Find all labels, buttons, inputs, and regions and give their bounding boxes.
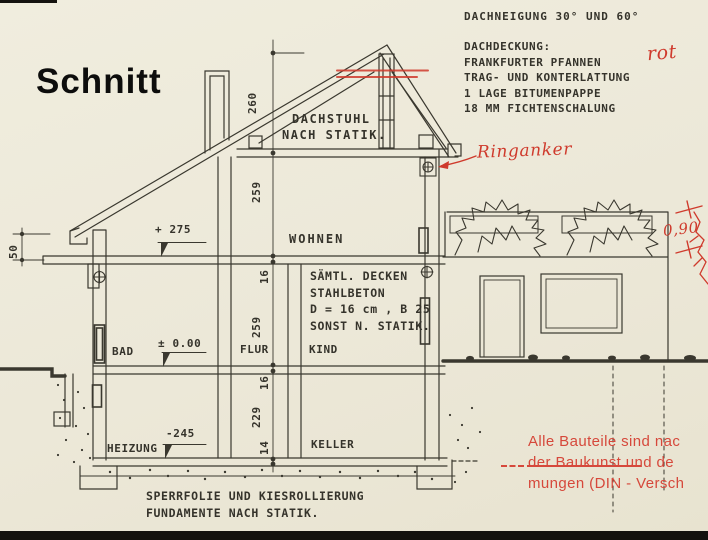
- red-stamp-line: der Baukunst und de: [528, 452, 684, 473]
- roof-covering-line: 18 MM FICHTENSCHALUNG: [464, 101, 630, 117]
- roof-covering-line: 1 LAGE BITUMENPAPPE: [464, 86, 630, 102]
- roof-covering-line: DACHDECKUNG:: [464, 39, 630, 55]
- scan-edge-top-left: [0, 0, 57, 3]
- room-label-wohnen: WOHNEN: [289, 233, 344, 245]
- dim-eave-height: 50: [8, 245, 19, 259]
- room-label-kind: KIND: [309, 344, 338, 355]
- stamp-strikethrough: [527, 465, 641, 467]
- room-label-heizung: HEIZUNG: [107, 443, 158, 454]
- ceiling-spec-note: SÄMTL. DECKEN STAHLBETON D = 16 cm , B 2…: [310, 268, 430, 334]
- dim-upper-slab: 16: [259, 270, 270, 284]
- roof-pitch-note: DACHNEIGUNG 30° UND 60°: [464, 11, 639, 22]
- ring-anchor-symbols: [94, 162, 434, 283]
- level-basement: -245: [166, 428, 195, 439]
- chimney: [205, 71, 229, 153]
- attic-note-line2: NACH STATIK.: [282, 129, 387, 141]
- blueprint-canvas: Schnitt DACHNEIGUNG 30° UND 60° DACHDECK…: [0, 0, 708, 540]
- roof-covering-line: FRANKFURTER PFANNEN: [464, 55, 630, 71]
- foundation-note: SPERRFOLIE UND KIESROLLIERUNG FUNDAMENTE…: [146, 488, 364, 521]
- parapet-plants: [455, 200, 658, 256]
- room-label-flur: FLUR: [240, 344, 269, 355]
- dim-basement-slab: 14: [259, 441, 270, 455]
- red-stamp-line: Alle Bauteile sind nac: [528, 431, 684, 452]
- level-ground-floor: ± 0.00: [158, 338, 201, 349]
- red-ring-beam-note: Ringanker: [477, 141, 573, 161]
- dim-basement-room: 229: [251, 406, 262, 428]
- foundation-note-line: FUNDAMENTE NACH STATIK.: [146, 505, 364, 522]
- ceiling-spec-line: STAHLBETON: [310, 285, 430, 302]
- roof-covering-note: DACHDECKUNG: FRANKFURTER PFANNEN TRAG- U…: [464, 39, 630, 117]
- foundation-note-line: SPERRFOLIE UND KIESROLLIERUNG: [146, 488, 364, 505]
- ceiling-spec-line: D = 16 cm , B 25: [310, 301, 430, 318]
- attic-note-line1: DACHSTUHL: [292, 113, 371, 125]
- page-title: Schnitt: [36, 64, 162, 99]
- ceiling-spec-line: SONST N. STATIK.: [310, 318, 430, 335]
- ceiling-spec-line: SÄMTL. DECKEN: [310, 268, 430, 285]
- dim-ground-room: 259: [251, 316, 262, 338]
- level-upper-floor: + 275: [155, 224, 191, 235]
- red-parapet-dim: 0,90: [662, 220, 699, 239]
- garage-elevation: [443, 212, 668, 361]
- room-label-bad: BAD: [112, 346, 134, 357]
- roof-covering-line: TRAG- UND KONTERLATTUNG: [464, 70, 630, 86]
- dim-upper-room: 259: [251, 181, 262, 203]
- red-roof-color-note: rot: [646, 43, 678, 65]
- dim-ground-slab: 16: [259, 376, 270, 390]
- scan-edge-bottom: [0, 531, 708, 540]
- dim-roof-height: 260: [247, 92, 258, 114]
- stamp-strikethrough-dashes: [501, 465, 524, 467]
- room-label-keller: KELLER: [311, 439, 354, 450]
- red-stamp-line: mungen (DIN - Versch: [528, 473, 684, 494]
- red-stamp-text: Alle Bauteile sind nac der Baukunst und …: [528, 431, 684, 494]
